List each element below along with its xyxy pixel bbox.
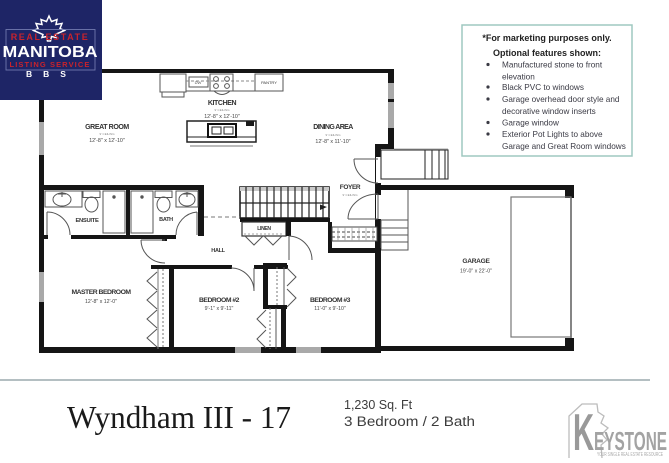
svg-text:MANITOBA: MANITOBA <box>3 44 98 61</box>
svg-text:Garage overhead door style and: Garage overhead door style and <box>502 95 620 104</box>
svg-text:12'-8" x 11'-10": 12'-8" x 11'-10" <box>315 139 350 145</box>
svg-text:decorative window inserts: decorative window inserts <box>502 107 596 116</box>
svg-text:YOUR SINGLE REAL ESTATE RESOUR: YOUR SINGLE REAL ESTATE RESOURCE <box>597 452 663 458</box>
svg-text:Optional features shown:: Optional features shown: <box>493 48 601 58</box>
svg-text:BEDROOM #2: BEDROOM #2 <box>199 297 240 304</box>
svg-text:9' CEILING: 9' CEILING <box>342 193 358 197</box>
svg-text:Black PVC to windows: Black PVC to windows <box>502 83 584 92</box>
svg-text:BATH: BATH <box>159 217 173 223</box>
svg-text:*For marketing purposes only.: *For marketing purposes only. <box>482 33 611 43</box>
svg-text:HALL: HALL <box>211 248 225 254</box>
svg-text:12'-8" x 12'-10": 12'-8" x 12'-10" <box>204 114 240 120</box>
svg-text:Garage and Great Room windows: Garage and Great Room windows <box>502 142 626 151</box>
svg-text:KITCHEN: KITCHEN <box>208 100 237 107</box>
svg-text:Wyndham III - 17: Wyndham III - 17 <box>67 399 291 435</box>
svg-text:9' CEILING: 9' CEILING <box>325 133 341 137</box>
svg-text:12'-8" x 12'-10": 12'-8" x 12'-10" <box>89 138 125 144</box>
svg-text:ENSUITE: ENSUITE <box>75 218 98 224</box>
svg-text:DINING AREA: DINING AREA <box>313 124 353 131</box>
svg-text:12'-8" x 12'-0": 12'-8" x 12'-0" <box>85 299 117 305</box>
svg-text:PANTRY: PANTRY <box>261 80 277 85</box>
svg-text:BEDROOM #3: BEDROOM #3 <box>310 297 351 304</box>
svg-text:19'-0" x 22'-0": 19'-0" x 22'-0" <box>460 269 492 275</box>
svg-text:1,230 Sq. Ft: 1,230 Sq. Ft <box>344 398 413 412</box>
svg-text:11'-0" x 9'-10": 11'-0" x 9'-10" <box>314 306 346 312</box>
svg-text:9' CEILING: 9' CEILING <box>99 132 115 136</box>
svg-text:Exterior Pot Lights to above: Exterior Pot Lights to above <box>502 130 603 139</box>
svg-text:Garage window: Garage window <box>502 119 559 128</box>
svg-text:REAL ESTATE: REAL ESTATE <box>11 32 90 42</box>
svg-text:FOYER: FOYER <box>340 184 361 191</box>
svg-text:GARAGE: GARAGE <box>462 258 490 265</box>
svg-text:GREAT ROOM: GREAT ROOM <box>85 124 129 131</box>
svg-text:K: K <box>573 403 594 458</box>
svg-text:LINEN: LINEN <box>257 226 271 232</box>
svg-text:elevation: elevation <box>502 73 535 82</box>
svg-text:3 Bedroom / 2 Bath: 3 Bedroom / 2 Bath <box>344 414 475 429</box>
svg-text:Manufactured stone to front: Manufactured stone to front <box>502 61 603 70</box>
svg-text:LISTING SERVICE: LISTING SERVICE <box>10 60 91 69</box>
svg-text:BBS: BBS <box>26 69 77 79</box>
svg-text:9' CEILING: 9' CEILING <box>214 108 230 112</box>
svg-text:9'-1" x 9'-11": 9'-1" x 9'-11" <box>205 306 234 312</box>
svg-text:MASTER BEDROOM: MASTER BEDROOM <box>71 289 131 296</box>
